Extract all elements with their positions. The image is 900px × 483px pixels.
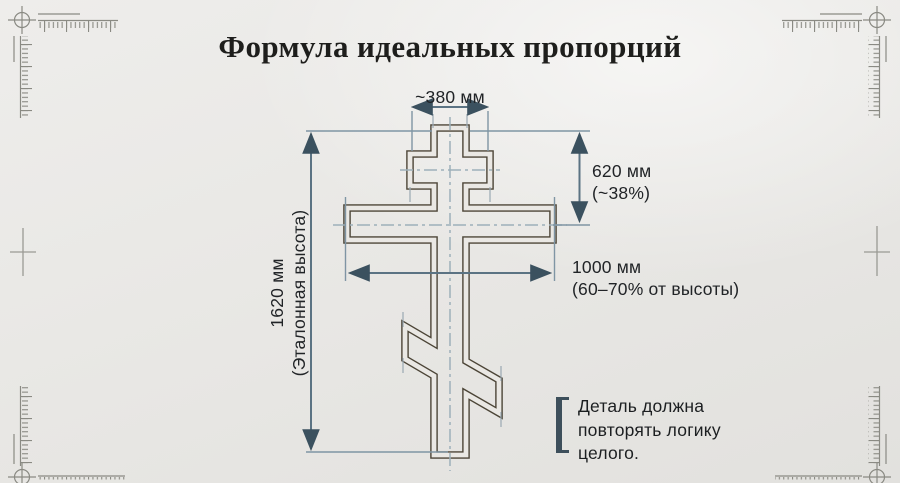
blueprint-drawing	[0, 0, 900, 483]
centerlines	[333, 117, 567, 471]
crossbar-width-value: 1000 мм	[572, 256, 739, 278]
dimension-label-top-width: ~380 мм	[395, 86, 505, 108]
upper-height-percent: (~38%)	[592, 182, 651, 204]
note-line-2: повторять логику	[578, 419, 721, 443]
note-text: Деталь должна повторять логику целого.	[578, 395, 721, 466]
dimension-label-total-height: 1620 мм (Эталонная высота)	[266, 178, 312, 408]
page-title: Формула идеальных пропорций	[0, 29, 900, 65]
crossbar-width-percent: (60–70% от высоты)	[572, 278, 739, 300]
extension-lines	[306, 111, 590, 452]
note-bracket	[556, 397, 569, 453]
top-width-value: ~380 мм	[415, 87, 485, 107]
upper-height-value: 620 мм	[592, 160, 651, 182]
blueprint-poster: Формула идеальных пропорций ~380 мм 620 …	[0, 0, 900, 483]
total-height-caption: (Эталонная высота)	[288, 178, 310, 408]
dimension-label-crossbar-width: 1000 мм (60–70% от высоты)	[572, 256, 739, 300]
dimension-arrows	[311, 107, 580, 449]
note-line-3: целого.	[578, 442, 721, 466]
total-height-value: 1620 мм	[266, 178, 288, 408]
note-line-1: Деталь должна	[578, 395, 721, 419]
dimension-label-upper-height: 620 мм (~38%)	[592, 160, 651, 204]
